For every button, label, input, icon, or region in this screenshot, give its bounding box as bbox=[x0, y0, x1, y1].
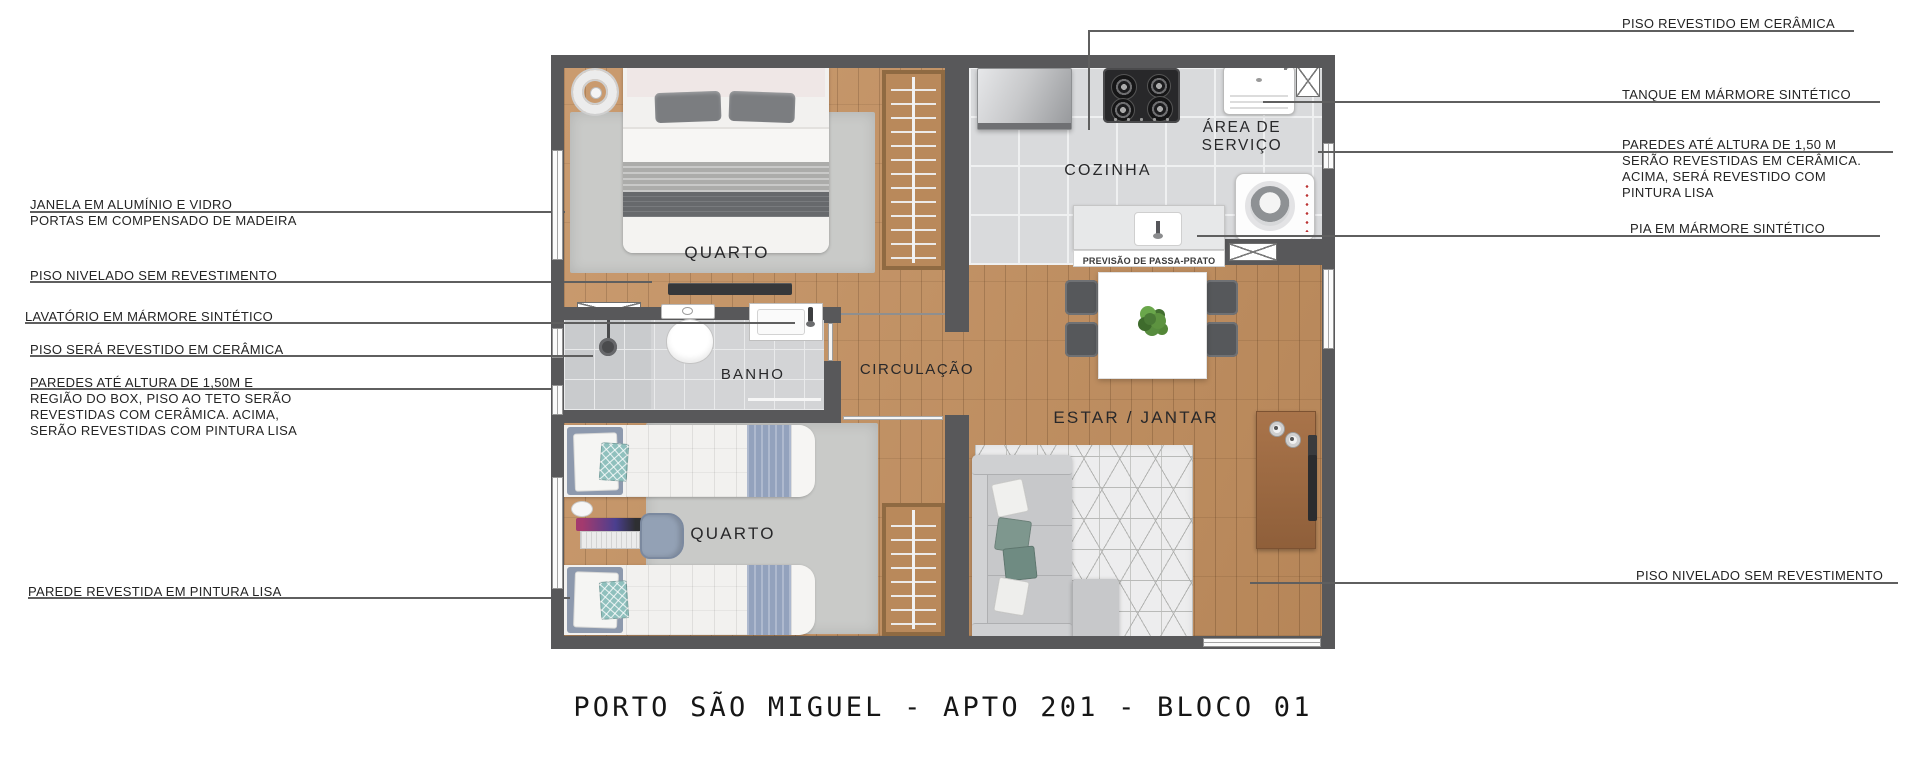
double-bed bbox=[623, 67, 829, 253]
room-label-living: ESTAR / JANTAR bbox=[1036, 408, 1236, 428]
sofa-chaise bbox=[1072, 579, 1119, 642]
dresser bbox=[668, 283, 792, 295]
leader-line bbox=[25, 322, 795, 324]
wall-outer-top bbox=[551, 55, 1335, 68]
callout-line: PIA EM MÁRMORE SINTÉTICO bbox=[1630, 221, 1825, 236]
callout-piso-nivelado-left: PISO NIVELADO SEM REVESTIMENTO bbox=[30, 268, 277, 284]
wall-main-vertical-upper bbox=[945, 68, 969, 332]
window bbox=[1323, 143, 1334, 169]
callout-line: PISO REVESTIDO EM CERÂMICA bbox=[1622, 16, 1835, 31]
callout-paredes-cozinha: PAREDES ATÉ ALTURA DE 1,50 M SERÃO REVES… bbox=[1622, 137, 1861, 201]
callout-line: SERÃO REVESTIDAS EM CERÂMICA. bbox=[1622, 153, 1861, 168]
duct-hatch bbox=[1229, 243, 1277, 261]
callout-line: PISO NIVELADO SEM REVESTIMENTO bbox=[30, 268, 277, 283]
hanger-rail-icon bbox=[912, 77, 915, 263]
leader-line bbox=[1263, 101, 1880, 103]
callout-line: PAREDE REVESTIDA EM PINTURA LISA bbox=[28, 584, 282, 599]
room-label-circulation: CIRCULAÇÃO bbox=[827, 361, 1007, 378]
bed-foot-roll bbox=[791, 425, 815, 497]
teal-cushion bbox=[599, 580, 630, 620]
bedroom1-door-threshold bbox=[841, 313, 945, 315]
laptop bbox=[576, 518, 642, 548]
faucet-icon bbox=[808, 307, 813, 322]
callout-line: REGIÃO DO BOX, PISO AO TETO SERÃO bbox=[30, 391, 292, 406]
blanket-blue-band bbox=[747, 425, 791, 497]
hanger-rail-icon bbox=[912, 510, 915, 629]
sofa bbox=[972, 455, 1072, 642]
washer-controls bbox=[1304, 182, 1310, 232]
blanket-dark-band bbox=[623, 192, 829, 217]
leader-line bbox=[1088, 30, 1090, 130]
tv-console bbox=[1256, 411, 1316, 549]
teal-cushion bbox=[599, 442, 630, 482]
dining-chair bbox=[1065, 322, 1098, 357]
tank-ridges bbox=[1230, 91, 1288, 109]
plant-icon bbox=[1144, 313, 1156, 325]
washer-drum-icon bbox=[1245, 181, 1295, 231]
passa-prato-label: PREVISÃO DE PASSA-PRATO bbox=[1083, 256, 1216, 266]
toilet-flush-button bbox=[682, 307, 693, 315]
window bbox=[552, 385, 563, 415]
wardrobe bbox=[882, 70, 945, 270]
wall-main-vertical-lower bbox=[945, 415, 969, 636]
decor-dot bbox=[1290, 437, 1294, 441]
decor-dot bbox=[1274, 426, 1278, 430]
wardrobe bbox=[882, 503, 945, 636]
dining-chair bbox=[1205, 322, 1238, 357]
teal-cushion bbox=[1002, 545, 1037, 581]
blanket-gray bbox=[623, 162, 829, 192]
shower-head-icon bbox=[599, 338, 617, 356]
laptop-screen bbox=[576, 518, 642, 531]
cooktop bbox=[1103, 68, 1180, 123]
room-label-bathroom: BANHO bbox=[673, 366, 833, 383]
floor-plan: PREVISÃO DE PASSA-PRATO bbox=[551, 55, 1335, 649]
room-label-bedroom1: QUARTO bbox=[647, 243, 807, 263]
desk-lamp bbox=[571, 501, 593, 517]
callout-line: PORTAS EM COMPENSADO DE MADEIRA bbox=[30, 213, 297, 228]
callout-line: PAREDES ATÉ ALTURA DE 1,50M E bbox=[30, 375, 253, 390]
pillow bbox=[654, 91, 721, 123]
pillow bbox=[728, 91, 795, 123]
leader-line bbox=[1318, 151, 1893, 153]
leader-line bbox=[1197, 235, 1880, 237]
dining-table bbox=[1098, 272, 1207, 379]
wall-bedroom2-top bbox=[564, 410, 841, 423]
refrigerator bbox=[977, 68, 1072, 130]
burner-icon bbox=[1147, 74, 1171, 98]
refrigerator-base bbox=[978, 123, 1071, 129]
callout-paredes-box: PAREDES ATÉ ALTURA DE 1,50M E REGIÃO DO … bbox=[30, 375, 297, 439]
faucet-base bbox=[1153, 233, 1163, 239]
tank-drain bbox=[1256, 78, 1262, 82]
passa-prato-counter bbox=[1073, 205, 1225, 250]
twin-bed bbox=[564, 425, 814, 497]
toilet-bowl bbox=[666, 319, 714, 364]
twin-bed bbox=[564, 565, 814, 635]
service-label-line2: SERVIÇO bbox=[1202, 137, 1283, 154]
passa-prato-label-strip: PREVISÃO DE PASSA-PRATO bbox=[1073, 250, 1225, 267]
room-label-service: ÁREA DE SERVIÇO bbox=[1162, 119, 1322, 155]
callout-line: JANELA EM ALUMÍNIO E VIDRO bbox=[30, 197, 232, 212]
callout-window-doors: JANELA EM ALUMÍNIO E VIDRO PORTAS EM COM… bbox=[30, 197, 297, 229]
white-cushion bbox=[991, 478, 1029, 518]
window bbox=[1323, 269, 1334, 349]
window bbox=[552, 477, 563, 589]
bath-threshold bbox=[748, 398, 821, 401]
tv bbox=[1308, 435, 1317, 521]
wall-bathroom-right-upper bbox=[824, 307, 841, 323]
ceiling-light-center bbox=[590, 87, 602, 99]
bedroom2-door-threshold bbox=[843, 416, 943, 420]
sofa-back bbox=[972, 455, 988, 642]
leader-line bbox=[30, 355, 593, 357]
window bbox=[552, 328, 563, 358]
service-label-line1: ÁREA DE bbox=[1203, 119, 1281, 136]
bathroom-door-leaf bbox=[828, 323, 833, 361]
callout-line: PAREDES ATÉ ALTURA DE 1,50 M bbox=[1622, 137, 1836, 152]
callout-line: PINTURA LISA bbox=[1622, 185, 1714, 200]
laptop-keyboard bbox=[580, 531, 640, 549]
burner-icon bbox=[1111, 74, 1137, 100]
duct-hatch bbox=[1296, 65, 1320, 97]
white-cushion bbox=[993, 577, 1030, 617]
window bbox=[1203, 638, 1321, 647]
callout-line: SERÃO REVESTIDAS COM PINTURA LISA bbox=[30, 423, 297, 438]
room-label-kitchen: COZINHA bbox=[1028, 162, 1188, 180]
mattress-quilt bbox=[626, 425, 756, 497]
callout-piso-ceramica-right: PISO REVESTIDO EM CERÂMICA bbox=[1622, 16, 1835, 32]
faucet-base bbox=[806, 321, 815, 327]
bed-foot-roll bbox=[791, 565, 815, 635]
callout-line: ACIMA, SERÁ REVESTIDO COM bbox=[1622, 169, 1826, 184]
washing-machine bbox=[1235, 173, 1315, 241]
mattress-quilt bbox=[626, 565, 756, 635]
dining-chair bbox=[1205, 280, 1238, 315]
callout-line: REVESTIDAS COM CERÂMICA. ACIMA, bbox=[30, 407, 279, 422]
callout-line: PISO NIVELADO SEM REVESTIMENTO bbox=[1636, 568, 1883, 583]
leader-line bbox=[1250, 582, 1898, 584]
callout-parede-pintura: PAREDE REVESTIDA EM PINTURA LISA bbox=[28, 584, 282, 600]
room-label-bedroom2: QUARTO bbox=[653, 524, 813, 544]
floor-plan-page: PREVISÃO DE PASSA-PRATO bbox=[0, 0, 1920, 767]
plan-title: PORTO SÃO MIGUEL - APTO 201 - BLOCO 01 bbox=[551, 692, 1335, 723]
window bbox=[552, 150, 563, 260]
laundry-tank bbox=[1223, 65, 1295, 115]
callout-line: TANQUE EM MÁRMORE SINTÉTICO bbox=[1622, 87, 1851, 102]
kitchen-sink-pia bbox=[1134, 212, 1182, 246]
sofa-armrest bbox=[972, 455, 1072, 475]
blanket-blue-band bbox=[747, 565, 791, 635]
dining-chair bbox=[1065, 280, 1098, 315]
